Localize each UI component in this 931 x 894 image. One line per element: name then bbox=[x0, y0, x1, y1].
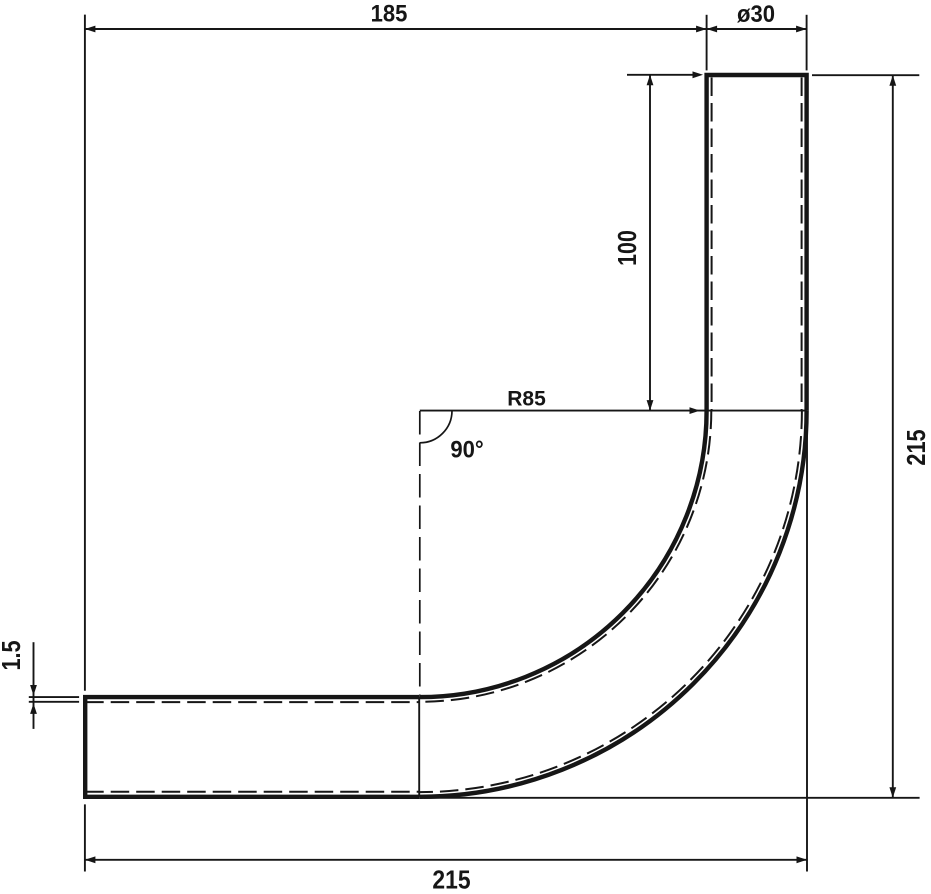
svg-text:1.5: 1.5 bbox=[0, 640, 26, 670]
svg-text:215: 215 bbox=[902, 429, 931, 465]
svg-text:R85: R85 bbox=[507, 388, 546, 411]
svg-text:ø30: ø30 bbox=[737, 0, 775, 27]
svg-text:215: 215 bbox=[432, 866, 470, 894]
svg-text:100: 100 bbox=[614, 230, 642, 266]
svg-text:185: 185 bbox=[371, 0, 408, 27]
svg-text:90°: 90° bbox=[450, 435, 483, 462]
